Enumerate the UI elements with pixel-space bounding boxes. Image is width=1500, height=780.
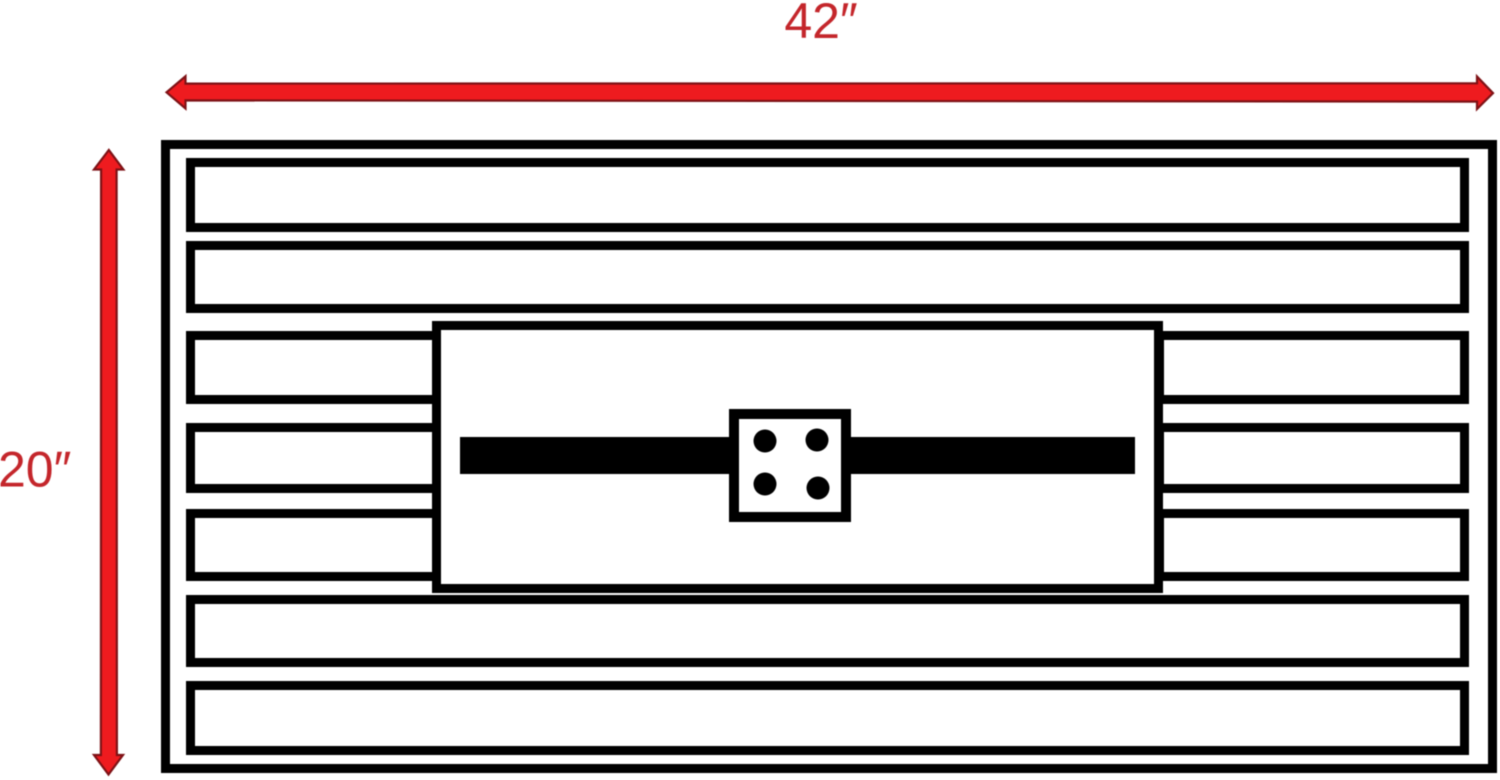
svg-text:20″: 20″ — [0, 442, 71, 498]
svg-text:42″: 42″ — [784, 0, 857, 49]
